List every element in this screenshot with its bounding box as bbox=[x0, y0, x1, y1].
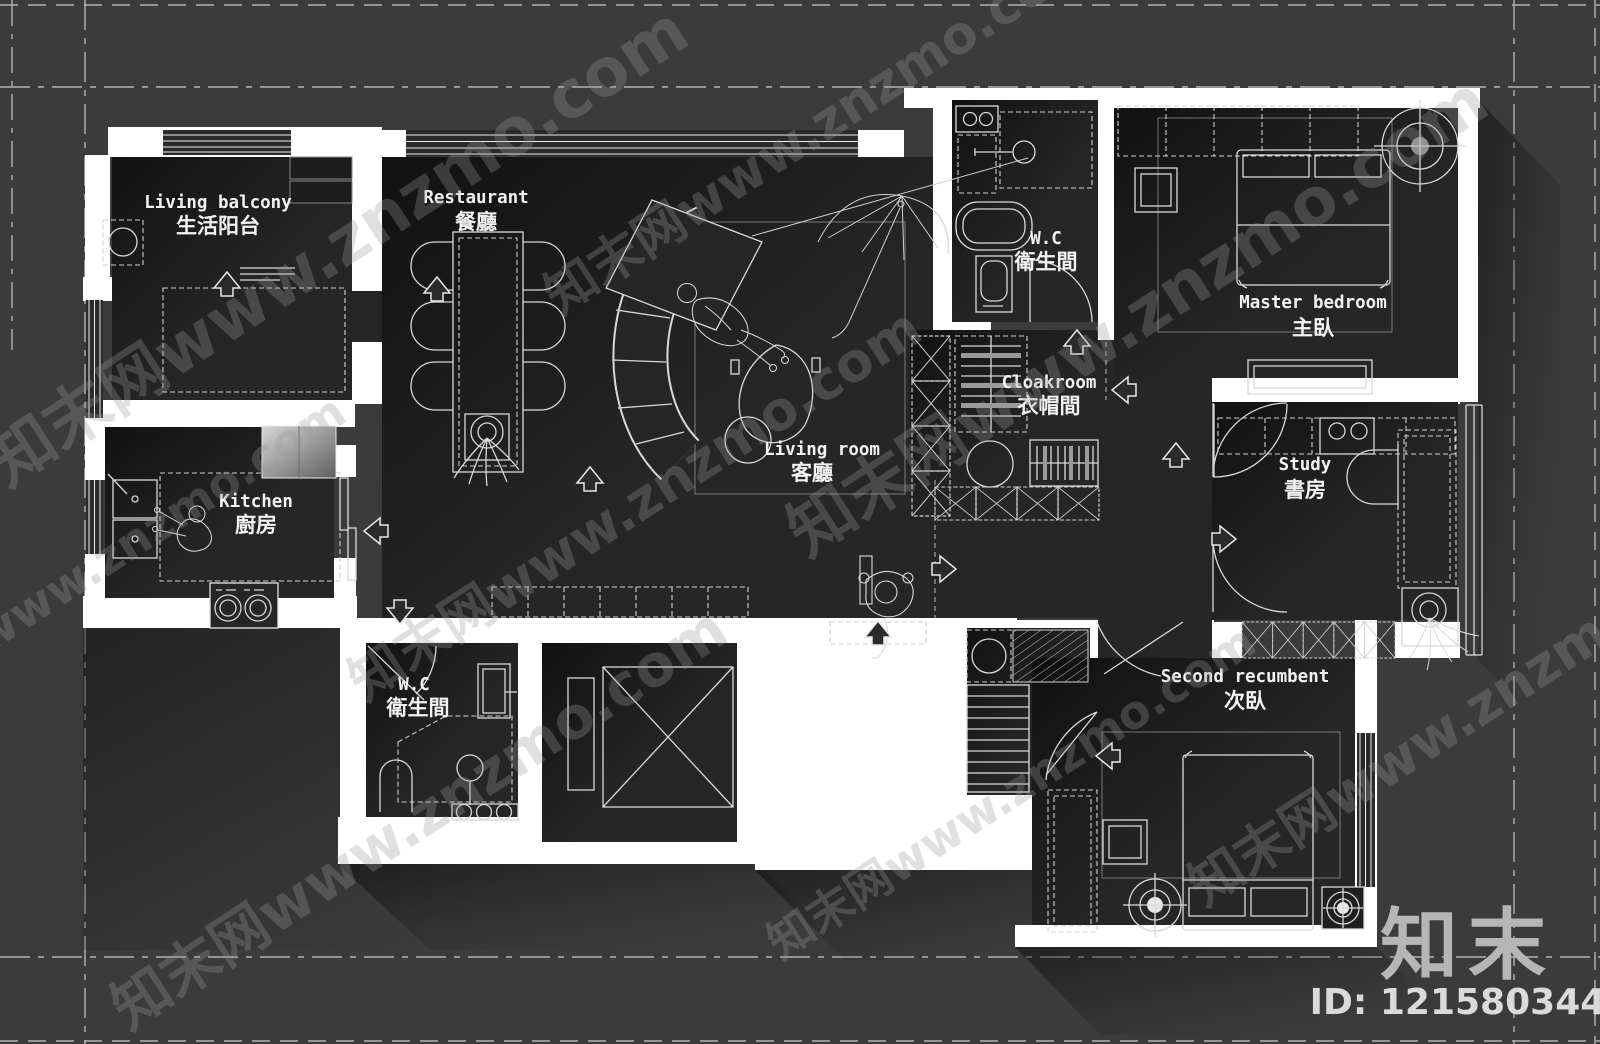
room-label-second-bedroom-zh: 次臥 bbox=[1224, 689, 1267, 713]
room-label-kitchen-zh: 廚房 bbox=[235, 513, 277, 537]
downlight-icon bbox=[1322, 887, 1364, 929]
room-label-master-bedroom-zh: 主臥 bbox=[1292, 316, 1335, 340]
room-label-master-bedroom-en: Master bedroom bbox=[1239, 293, 1387, 313]
room-label-study-zh: 書房 bbox=[1284, 478, 1326, 502]
floor-plan-svg: Living balcony 生活阳台 Restaurant 餐廳 Living… bbox=[0, 0, 1600, 1044]
shelf-hatch bbox=[1013, 630, 1088, 682]
room-label-wc-lower-zh: 衛生間 bbox=[386, 696, 450, 720]
room-label-living-balcony-zh: 生活阳台 bbox=[176, 214, 260, 238]
asset-id: ID: 1215803446 bbox=[1310, 982, 1600, 1023]
room-label-wc-upper-en: W.C bbox=[1030, 229, 1062, 249]
room-label-wc-upper-zh: 衛生間 bbox=[1014, 250, 1078, 274]
room-label-restaurant-zh: 餐廳 bbox=[455, 210, 497, 234]
room-label-study-en: Study bbox=[1279, 455, 1332, 475]
room-label-living-balcony-en: Living balcony bbox=[144, 193, 292, 213]
floor-plan-canvas: Living balcony 生活阳台 Restaurant 餐廳 Living… bbox=[0, 0, 1600, 1044]
stove-icon bbox=[210, 583, 278, 628]
site-logo: 知末 bbox=[1380, 901, 1556, 991]
